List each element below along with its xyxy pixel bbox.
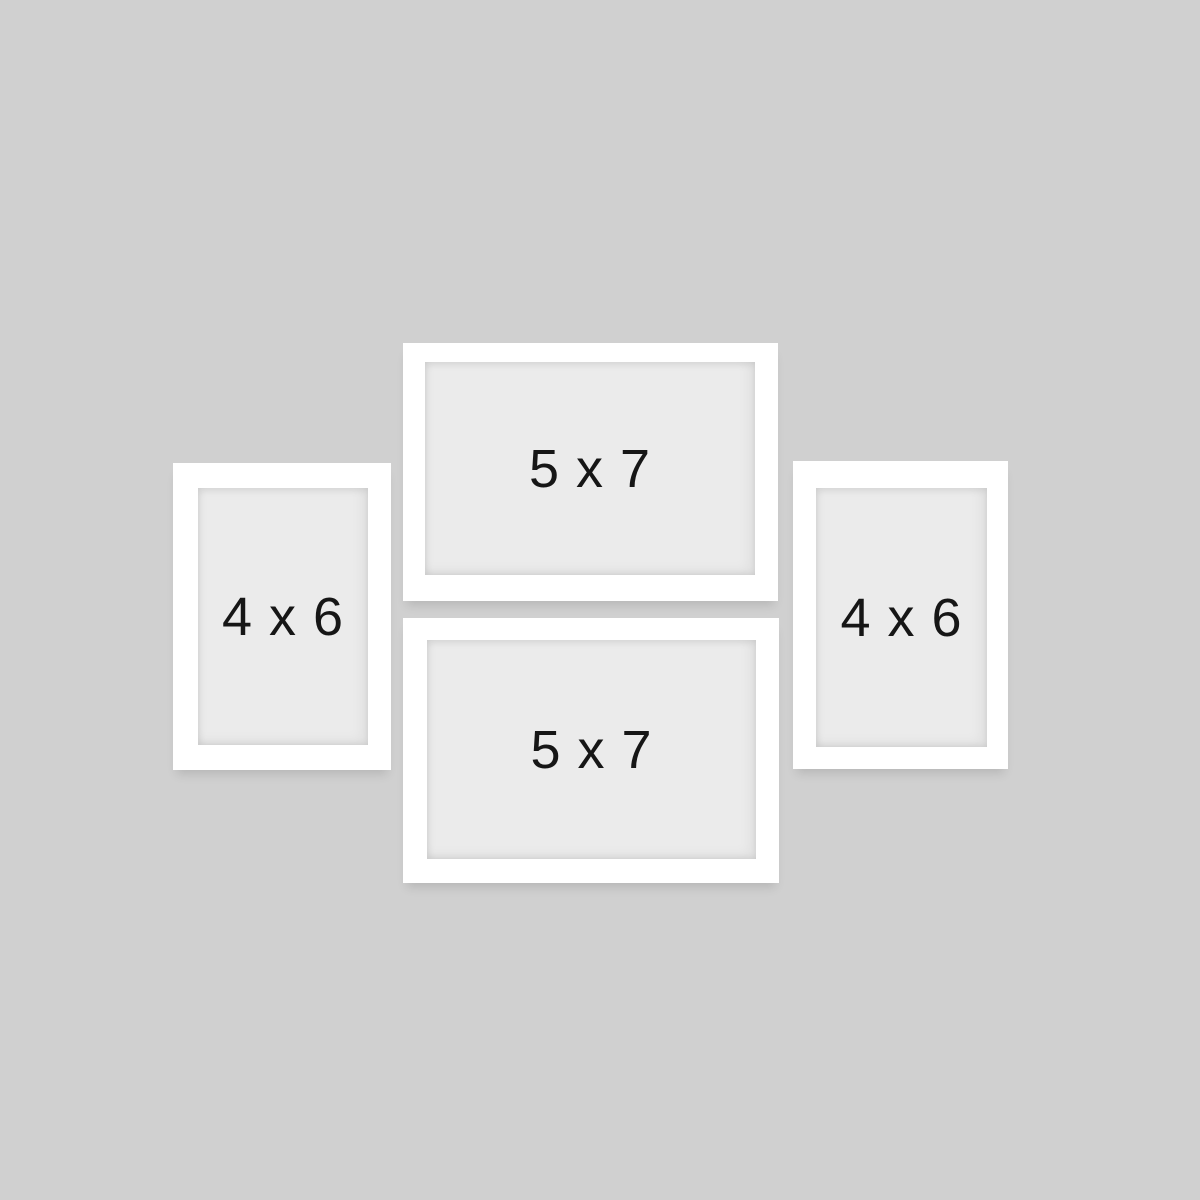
frame-matte: 4 x 6 (198, 488, 368, 745)
frame-matte: 5 x 7 (427, 640, 756, 859)
picture-frame-5x7-top: 5 x 7 (403, 343, 778, 601)
frame-set-product-photo: 5 x 7 4 x 6 4 x 6 5 x 7 (0, 0, 1200, 1200)
frame-matte: 4 x 6 (816, 488, 987, 747)
picture-frame-4x6-left: 4 x 6 (173, 463, 391, 770)
frame-size-label: 5 x 7 (529, 442, 651, 496)
frame-matte: 5 x 7 (425, 362, 755, 575)
frame-size-label: 4 x 6 (840, 591, 962, 645)
frame-size-label: 5 x 7 (530, 723, 652, 777)
picture-frame-5x7-bottom: 5 x 7 (403, 618, 779, 883)
frame-size-label: 4 x 6 (222, 590, 344, 644)
picture-frame-4x6-right: 4 x 6 (793, 461, 1008, 769)
